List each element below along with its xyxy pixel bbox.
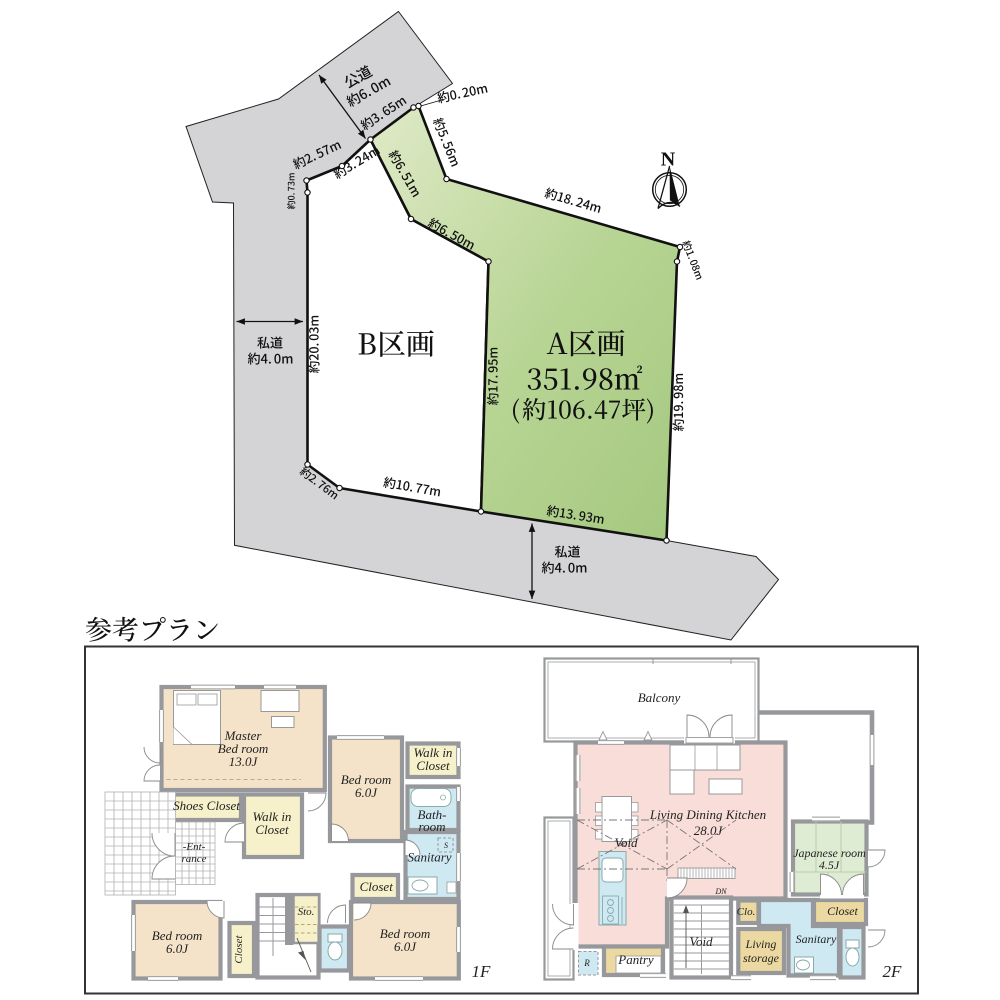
svg-text:-Ent-: -Ent- — [183, 841, 206, 853]
svg-text:DN: DN — [714, 887, 727, 896]
svg-text:Closet: Closet — [233, 935, 245, 964]
svg-text:Pantry: Pantry — [617, 952, 654, 967]
svg-text:rance: rance — [181, 853, 206, 865]
svg-text:Void: Void — [689, 934, 713, 949]
svg-text:Closet: Closet — [416, 758, 450, 773]
svg-text:Clo.: Clo. — [737, 906, 756, 918]
svg-text:Living Dining Kitchen: Living Dining Kitchen — [649, 807, 766, 822]
svg-text:Closet: Closet — [255, 822, 289, 837]
svg-text:Sto.: Sto. — [298, 906, 315, 918]
svg-text:R: R — [583, 958, 590, 968]
svg-text:N: N — [661, 149, 676, 171]
svg-text:Living: Living — [745, 937, 777, 951]
svg-text:Balcony: Balcony — [638, 690, 681, 705]
svg-text:Sanitary: Sanitary — [407, 850, 451, 865]
svg-text:room: room — [419, 819, 446, 834]
svg-text:6.0J: 6.0J — [394, 939, 417, 954]
svg-text:1F: 1F — [472, 962, 492, 981]
svg-text:6.0J: 6.0J — [355, 785, 378, 800]
svg-text:Void: Void — [614, 835, 638, 850]
svg-text:28.0J: 28.0J — [694, 823, 724, 838]
svg-text:2F: 2F — [883, 962, 903, 981]
svg-text:Closet: Closet — [360, 879, 394, 894]
svg-text:S: S — [444, 841, 448, 850]
svg-text:storage: storage — [743, 951, 780, 965]
svg-text:Shoes Closet: Shoes Closet — [173, 798, 240, 813]
svg-text:Sanitary: Sanitary — [796, 932, 837, 946]
svg-text:Closet: Closet — [827, 904, 858, 918]
svg-text:13.0J: 13.0J — [229, 754, 259, 769]
svg-text:4.5J: 4.5J — [819, 858, 840, 872]
svg-text:6.0J: 6.0J — [166, 941, 189, 956]
